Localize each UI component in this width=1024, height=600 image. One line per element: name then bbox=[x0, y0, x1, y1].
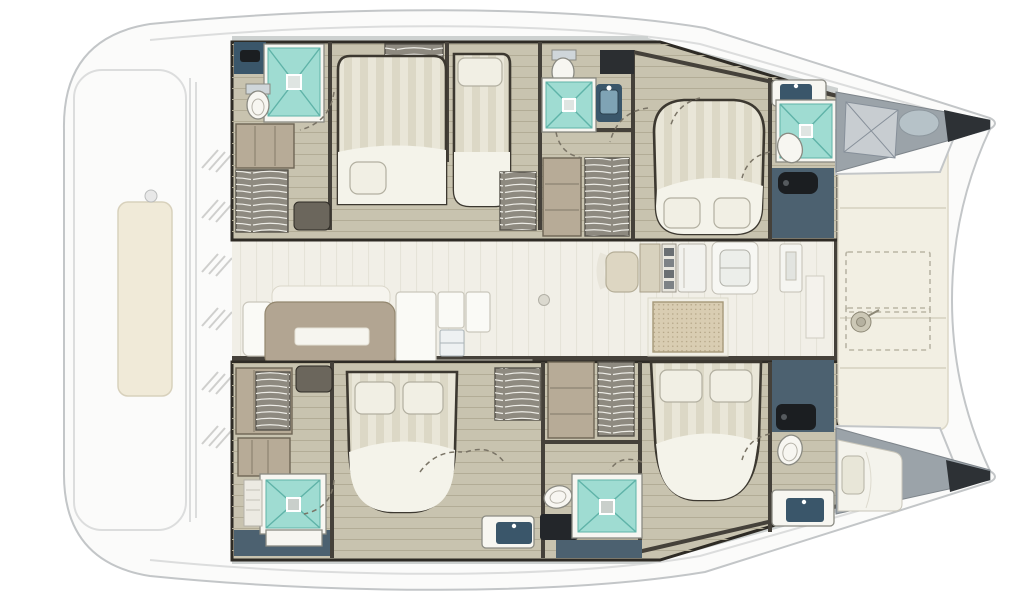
pillow bbox=[842, 456, 864, 494]
aft-sunpad bbox=[118, 202, 172, 396]
catamaran-floor-plan bbox=[0, 0, 1024, 600]
locker-ribs bbox=[495, 368, 541, 420]
wall bbox=[328, 42, 332, 230]
floor-plan-svg bbox=[0, 0, 1024, 600]
hatch-knob bbox=[781, 414, 787, 420]
shower-drain bbox=[287, 498, 300, 511]
faucet bbox=[794, 84, 798, 88]
port-forward-head bbox=[772, 80, 836, 238]
shower-drain bbox=[563, 99, 575, 111]
engine-hatch-grate bbox=[648, 298, 728, 356]
pantry-slot bbox=[786, 252, 796, 280]
nav-cabinet bbox=[640, 244, 660, 292]
appliance bbox=[664, 248, 674, 256]
pillow bbox=[458, 58, 502, 86]
sink-basin-dark bbox=[240, 50, 260, 62]
floor-socket bbox=[539, 295, 550, 306]
faucet bbox=[512, 524, 516, 528]
nav-seat bbox=[606, 252, 638, 292]
locker-ribs bbox=[598, 362, 634, 436]
stool bbox=[296, 366, 332, 392]
head-floor bbox=[556, 540, 642, 558]
starboard-hull bbox=[232, 360, 838, 560]
appliance bbox=[664, 281, 674, 289]
pillow bbox=[403, 382, 443, 414]
faucet bbox=[802, 500, 806, 504]
hatch-knob bbox=[783, 180, 789, 186]
locker-ribs bbox=[256, 372, 290, 430]
shower-drain bbox=[800, 125, 812, 137]
nav-seat-armrest bbox=[601, 254, 605, 288]
shelf-unit bbox=[548, 362, 594, 438]
dinette-table-insert bbox=[295, 328, 369, 345]
locker-ribs bbox=[585, 158, 629, 236]
starboard-forward-cabin bbox=[651, 362, 761, 500]
foredeck bbox=[838, 142, 948, 430]
deck-fitting-knob bbox=[145, 190, 157, 202]
pillow bbox=[714, 198, 750, 228]
sink-basin bbox=[600, 90, 618, 114]
shower-bench bbox=[266, 530, 322, 546]
shower-drain bbox=[287, 75, 301, 89]
counter-dark bbox=[600, 50, 634, 74]
shelf-unit bbox=[543, 158, 581, 236]
appliance bbox=[664, 259, 674, 267]
galley-cabinet-small bbox=[438, 292, 464, 328]
deck-hatch bbox=[899, 110, 939, 136]
foredeck-door bbox=[806, 276, 824, 338]
tall-fridge bbox=[678, 244, 706, 292]
pillow bbox=[355, 382, 395, 414]
locker-ribs bbox=[500, 172, 536, 230]
appliance bbox=[664, 270, 674, 278]
louver-panel bbox=[244, 480, 262, 526]
cubby-shelf bbox=[238, 438, 290, 476]
shower-drain bbox=[600, 500, 614, 514]
locker-ribs bbox=[236, 170, 288, 232]
foredeck-sole bbox=[838, 142, 948, 430]
pillow bbox=[710, 370, 752, 402]
pillow bbox=[664, 198, 700, 228]
galley-column bbox=[466, 292, 490, 332]
pillow bbox=[350, 162, 386, 194]
faucet bbox=[607, 86, 612, 91]
windlass-gypsy bbox=[857, 318, 866, 327]
shelf-unit bbox=[236, 124, 294, 168]
wall bbox=[330, 362, 334, 558]
wall bbox=[541, 440, 641, 444]
wall bbox=[538, 42, 542, 230]
port-aft-cabin bbox=[338, 44, 446, 204]
wall bbox=[631, 50, 635, 240]
bed-sheet bbox=[349, 441, 455, 512]
galley-cabinet bbox=[396, 292, 436, 364]
grate-dots bbox=[653, 302, 723, 352]
pillow bbox=[660, 370, 702, 402]
port-hull bbox=[232, 42, 838, 240]
stool bbox=[294, 202, 330, 230]
